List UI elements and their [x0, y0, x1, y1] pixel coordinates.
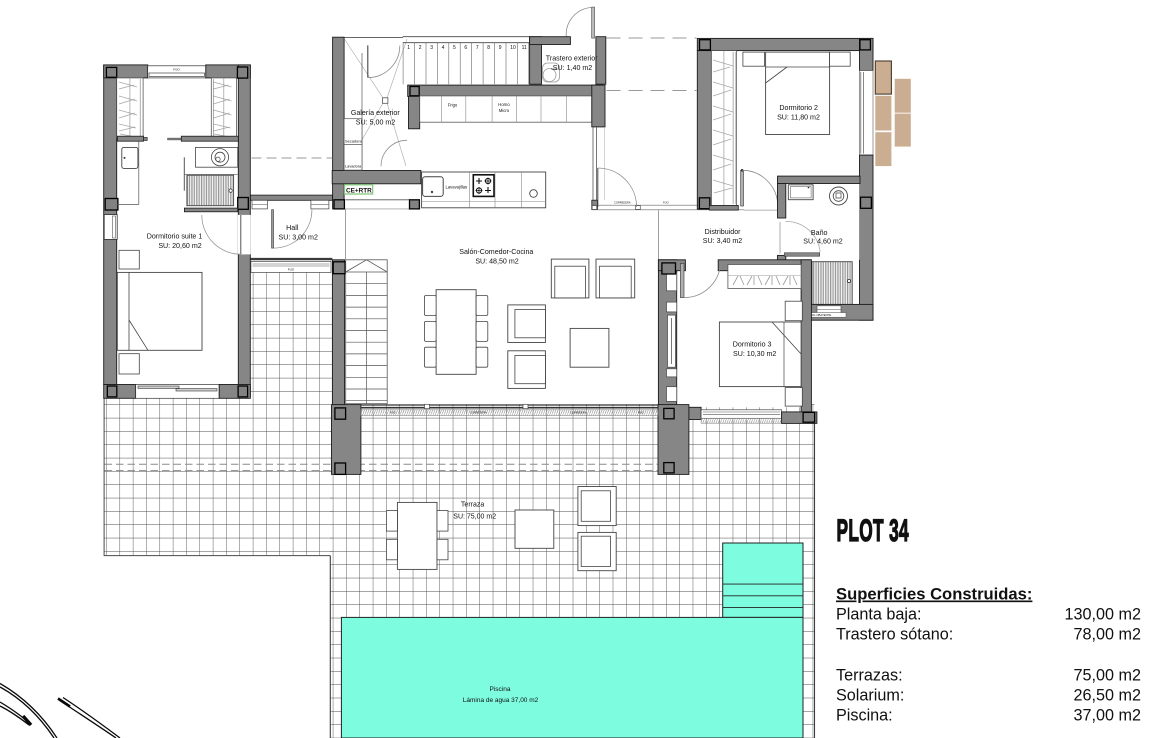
svg-text:8: 8 — [487, 45, 490, 51]
svg-text:SU: 20,60 m2: SU: 20,60 m2 — [158, 242, 201, 250]
svg-text:Hall: Hall — [286, 224, 299, 232]
svg-text:CE+RTR: CE+RTR — [346, 187, 372, 194]
svg-text:Micro: Micro — [499, 108, 510, 113]
svg-text:Lámina de agua 37,00 m2: Lámina de agua 37,00 m2 — [463, 697, 539, 704]
svg-text:Lavadora: Lavadora — [345, 164, 362, 169]
svg-text:Piscina: Piscina — [490, 686, 511, 693]
svg-text:75,00 m2: 75,00 m2 — [1074, 667, 1142, 685]
svg-text:SU: 1,40 m2: SU: 1,40 m2 — [553, 64, 592, 72]
svg-text:11: 11 — [522, 45, 527, 51]
svg-text:PLOT 34: PLOT 34 — [836, 514, 909, 549]
svg-text:1: 1 — [407, 45, 410, 51]
svg-text:Terrazas:: Terrazas: — [836, 667, 903, 685]
svg-text:10: 10 — [510, 45, 516, 51]
svg-text:Trastero sótano:: Trastero sótano: — [836, 626, 953, 644]
svg-text:Planta baja:: Planta baja: — [836, 606, 922, 624]
svg-text:SU: 4,60 m2: SU: 4,60 m2 — [803, 238, 842, 246]
svg-text:FIJO: FIJO — [390, 411, 396, 415]
svg-text:FIJO: FIJO — [663, 201, 669, 205]
svg-text:SU: 5,00 m2: SU: 5,00 m2 — [356, 118, 395, 126]
svg-text:4: 4 — [442, 45, 445, 51]
svg-text:Secadora: Secadora — [345, 139, 362, 144]
svg-text:6: 6 — [464, 45, 467, 51]
svg-text:FIJO: FIJO — [638, 411, 644, 415]
svg-text:Distribuidor: Distribuidor — [705, 228, 742, 236]
svg-text:78,00 m2: 78,00 m2 — [1074, 626, 1142, 644]
svg-text:CORREDERA: CORREDERA — [570, 411, 587, 415]
svg-text:5: 5 — [453, 45, 456, 51]
svg-text:Dormitorio 2: Dormitorio 2 — [779, 104, 818, 112]
svg-text:FIJO: FIJO — [288, 268, 295, 272]
svg-text:SU: 10,30 m2: SU: 10,30 m2 — [733, 350, 776, 358]
svg-text:3: 3 — [430, 45, 433, 51]
svg-text:Baño: Baño — [811, 229, 828, 237]
svg-text:Frigo: Frigo — [448, 103, 458, 108]
svg-text:130,00 m2: 130,00 m2 — [1065, 606, 1142, 624]
svg-text:Dormitorio suite 1: Dormitorio suite 1 — [147, 233, 203, 241]
svg-text:SU: 3,00 m2: SU: 3,00 m2 — [278, 234, 317, 242]
svg-text:9: 9 — [499, 45, 502, 51]
svg-text:Dormitorio 3: Dormitorio 3 — [733, 340, 772, 348]
svg-text:37,00 m2: 37,00 m2 — [1074, 707, 1142, 725]
svg-text:SU: 11,80 m2: SU: 11,80 m2 — [777, 113, 820, 121]
svg-text:FIJO: FIJO — [173, 68, 180, 72]
svg-text:CORREDERA: CORREDERA — [614, 201, 631, 205]
svg-text:Superficies Construidas:: Superficies Construidas: — [836, 585, 1032, 604]
svg-text:SU: 75,00 m2: SU: 75,00 m2 — [453, 514, 496, 521]
svg-text:Horno: Horno — [498, 102, 510, 107]
svg-text:SU: 48,50 m2: SU: 48,50 m2 — [475, 257, 518, 265]
svg-text:2: 2 — [419, 45, 422, 51]
svg-text:26,50 m2: 26,50 m2 — [1074, 687, 1142, 705]
svg-text:Terraza: Terraza — [461, 501, 484, 508]
svg-text:CORREDERA: CORREDERA — [470, 411, 487, 415]
svg-text:Galería exterior: Galería exterior — [351, 109, 401, 117]
svg-text:Solarium:: Solarium: — [836, 687, 904, 705]
svg-text:Trastero exterior: Trastero exterior — [546, 55, 598, 63]
svg-text:SU: 3,40 m2: SU: 3,40 m2 — [703, 237, 742, 245]
svg-text:SOL.OBATENTE: SOL.OBATENTE — [810, 313, 831, 317]
svg-text:7: 7 — [476, 45, 479, 51]
svg-text:Salón-Comedor-Cocina: Salón-Comedor-Cocina — [459, 248, 533, 256]
svg-text:Lavavajillas: Lavavajillas — [446, 185, 468, 190]
svg-text:Piscina:: Piscina: — [836, 707, 893, 725]
